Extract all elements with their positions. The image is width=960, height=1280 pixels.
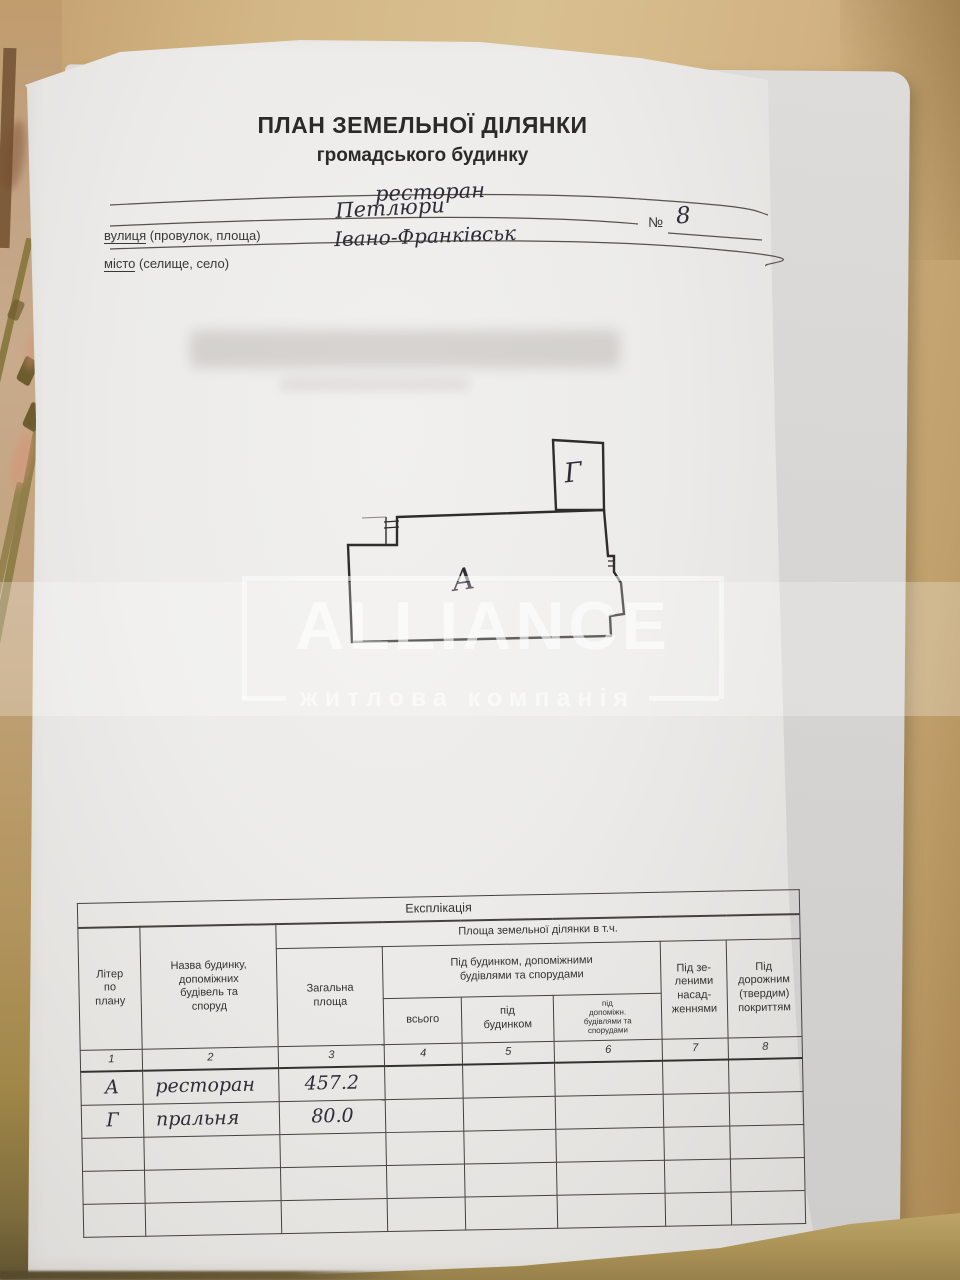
cell-empty (730, 1124, 805, 1158)
col-header-under-building: під будинком (461, 995, 554, 1043)
city-label-word: місто (104, 256, 135, 272)
col-number: 8 (728, 1036, 802, 1059)
col-header-all: всього (383, 997, 462, 1044)
page-title: ПЛАН ЗЕМЕЛЬНОЇ ДІЛЯНКИ (150, 112, 695, 139)
cell-empty (281, 1198, 388, 1233)
explication-table: Експлікація Літер по плану Назва будинку… (77, 889, 805, 1237)
city-field-label: місто (селище, село) (104, 256, 229, 271)
watermark-company-name: ALLIANCE (247, 587, 719, 665)
cell-total: 457.2 (279, 1066, 386, 1102)
cell-empty (83, 1203, 146, 1237)
cell-empty (728, 1058, 803, 1093)
photo-of-land-plot-plan-document: ПЛАН ЗЕМЕЛЬНОЇ ДІЛЯНКИ громадського буди… (0, 0, 960, 1280)
col-number: 2 (142, 1046, 278, 1070)
cell-empty (663, 1092, 730, 1126)
cell-empty (555, 1094, 664, 1129)
cell-empty (385, 1064, 464, 1099)
cell-letter: Г (81, 1104, 144, 1138)
cell-empty (280, 1132, 387, 1167)
watermark-tagline: житлова компанія (300, 684, 635, 713)
col-header-under-aux: під допоміжн. будівлями та спорудами (553, 993, 662, 1041)
col-number: 4 (384, 1043, 462, 1066)
cell-empty (557, 1193, 666, 1228)
cell-empty (729, 1091, 804, 1125)
col-number: 5 (462, 1041, 554, 1064)
cell-empty (556, 1160, 665, 1195)
col-number: 3 (278, 1044, 384, 1068)
cell-empty (664, 1158, 731, 1192)
cell-empty (464, 1129, 557, 1164)
cell-empty (464, 1162, 557, 1197)
handwritten-house-number: 8 (675, 203, 691, 230)
col-number: 6 (554, 1039, 662, 1063)
cell-empty (386, 1164, 465, 1198)
cell-name: ресторан (143, 1068, 280, 1104)
cell-empty (465, 1195, 558, 1230)
watermark-dash (242, 696, 286, 701)
page-bottom-shadow (0, 1271, 420, 1280)
cell-empty (280, 1165, 387, 1200)
cell-empty (463, 1096, 556, 1131)
number-sign-label: № (648, 214, 663, 230)
cell-empty (664, 1125, 731, 1159)
col-header-green: Під зе- леними насад- женнями (660, 940, 728, 1039)
cell-empty (730, 1157, 805, 1191)
col-header-name: Назва будинку, допоміжних будівель та сп… (140, 924, 278, 1049)
cell-empty (463, 1062, 556, 1097)
cell-empty (144, 1167, 281, 1203)
cell-empty (665, 1191, 732, 1225)
cell-empty (555, 1060, 664, 1096)
cell-empty (83, 1170, 146, 1204)
cell-empty (556, 1127, 665, 1162)
bleed-through-smudge (190, 330, 620, 368)
page-subtitle: громадського будинку (150, 145, 695, 167)
cell-empty (385, 1098, 464, 1132)
cell-empty (731, 1190, 806, 1224)
watermark-dash (649, 696, 719, 701)
col-header-letter: Літер по плану (78, 927, 142, 1050)
col-header-road: Під дорожним (твердим) покриттям (726, 938, 802, 1037)
cell-empty (145, 1200, 282, 1236)
cell-empty (662, 1059, 729, 1094)
col-number: 1 (80, 1049, 142, 1072)
cell-empty (386, 1131, 465, 1165)
city-label-rest: (селище, село) (135, 256, 229, 271)
street-label-word: вулиця (104, 228, 146, 244)
watermark-logo: ALLIANCE житлова компанія (242, 576, 724, 699)
document-header: ПЛАН ЗЕМЕЛЬНОЇ ДІЛЯНКИ громадського буди… (150, 112, 695, 167)
col-number: 7 (662, 1037, 728, 1060)
cell-name: пральня (143, 1101, 280, 1137)
building-g-letter: Г (562, 457, 585, 490)
col-group-under-buildings: Під будинком, допоміжними будівлями та с… (382, 941, 661, 998)
watermark-tagline-row: житлова компанія (242, 684, 724, 713)
street-field-label: вулиця (провулок, площа) (104, 228, 261, 243)
street-label-rest: (провулок, площа) (146, 228, 260, 243)
bleed-through-smudge (280, 378, 470, 390)
cell-letter: А (81, 1070, 144, 1105)
cell-empty (387, 1197, 466, 1231)
cell-empty (144, 1134, 281, 1170)
cell-total: 80.0 (279, 1099, 386, 1134)
col-header-total-area: Загальна площа (276, 946, 384, 1046)
cell-empty (82, 1137, 145, 1171)
